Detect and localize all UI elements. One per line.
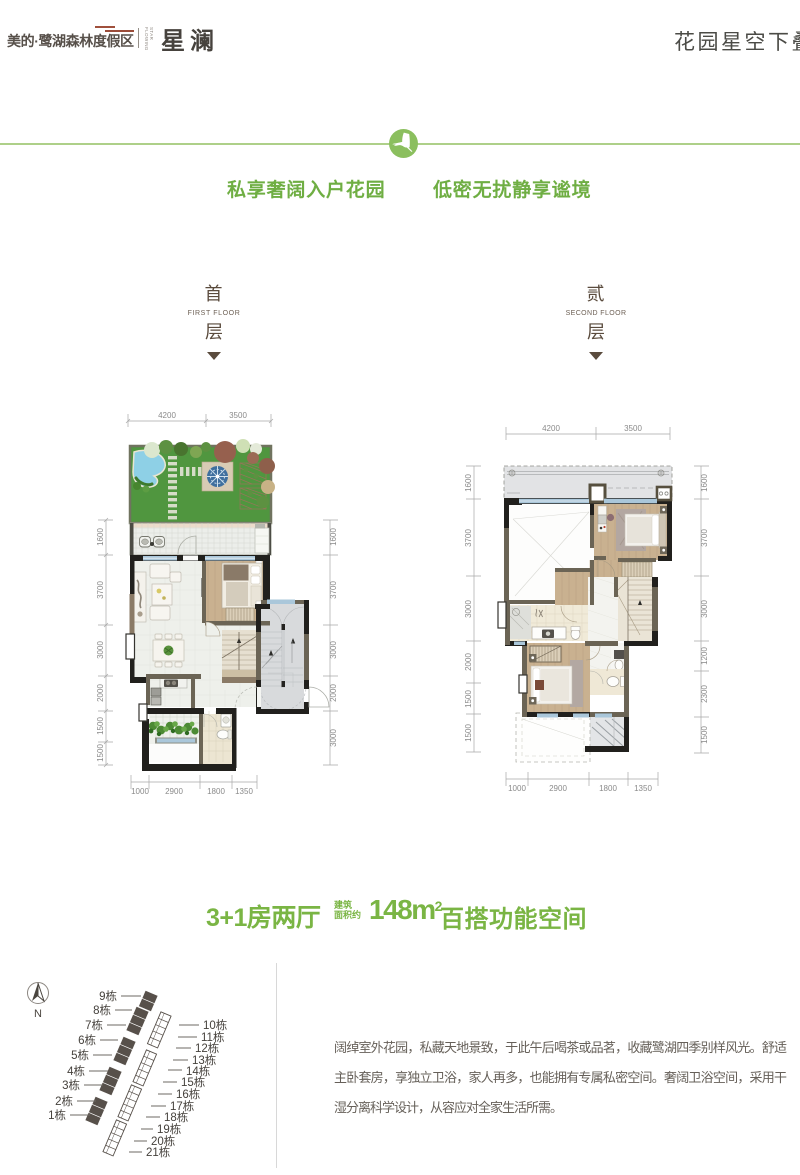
svg-text:4栋: 4栋: [67, 1064, 85, 1078]
svg-text:17栋: 17栋: [170, 1099, 195, 1113]
svg-text:1600: 1600: [96, 528, 105, 546]
svg-text:1500: 1500: [96, 744, 105, 762]
svg-text:1000: 1000: [508, 784, 526, 793]
svg-text:N: N: [34, 1008, 42, 1020]
svg-text:19栋: 19栋: [157, 1122, 182, 1136]
svg-text:4200: 4200: [158, 411, 176, 420]
svg-text:3000: 3000: [464, 600, 473, 618]
svg-text:18栋: 18栋: [164, 1110, 189, 1124]
svg-text:3500: 3500: [229, 411, 247, 420]
svg-text:10栋: 10栋: [203, 1018, 228, 1032]
svg-text:6栋: 6栋: [78, 1033, 96, 1047]
svg-text:13栋: 13栋: [192, 1053, 217, 1067]
svg-text:3000: 3000: [96, 641, 105, 659]
svg-text:1500: 1500: [96, 717, 105, 735]
svg-text:3700: 3700: [464, 529, 473, 547]
svg-text:1350: 1350: [235, 787, 253, 796]
svg-text:1栋: 1栋: [48, 1108, 66, 1122]
svg-text:9栋: 9栋: [99, 989, 117, 1003]
svg-text:3700: 3700: [329, 581, 338, 599]
svg-text:1500: 1500: [464, 724, 473, 742]
svg-text:1600: 1600: [700, 474, 709, 492]
svg-text:1500: 1500: [464, 690, 473, 708]
svg-text:1800: 1800: [207, 787, 225, 796]
svg-text:16栋: 16栋: [176, 1087, 201, 1101]
svg-text:7栋: 7栋: [85, 1018, 103, 1032]
svg-text:1600: 1600: [329, 528, 338, 546]
svg-text:11栋: 11栋: [201, 1030, 225, 1044]
svg-text:3栋: 3栋: [62, 1078, 80, 1092]
svg-text:3700: 3700: [700, 529, 709, 547]
svg-text:12栋: 12栋: [195, 1041, 220, 1055]
svg-text:3000: 3000: [329, 729, 338, 747]
svg-text:2000: 2000: [329, 684, 338, 702]
svg-text:1200: 1200: [700, 647, 709, 665]
svg-text:5栋: 5栋: [71, 1048, 89, 1062]
svg-text:2900: 2900: [165, 787, 183, 796]
svg-text:2栋: 2栋: [55, 1094, 73, 1108]
svg-text:15栋: 15栋: [181, 1075, 206, 1089]
svg-text:2000: 2000: [96, 684, 105, 702]
svg-text:3500: 3500: [624, 424, 642, 433]
svg-text:21栋: 21栋: [146, 1145, 171, 1159]
svg-text:2300: 2300: [700, 685, 709, 703]
svg-text:1600: 1600: [464, 474, 473, 492]
svg-text:1350: 1350: [634, 784, 652, 793]
svg-text:14栋: 14栋: [186, 1064, 211, 1078]
svg-text:1500: 1500: [700, 726, 709, 744]
svg-text:1000: 1000: [131, 787, 149, 796]
svg-text:3000: 3000: [700, 600, 709, 618]
svg-text:4200: 4200: [542, 424, 560, 433]
svg-text:3700: 3700: [96, 581, 105, 599]
svg-text:1800: 1800: [599, 784, 617, 793]
svg-text:2900: 2900: [549, 784, 567, 793]
svg-text:2000: 2000: [464, 653, 473, 671]
svg-text:20栋: 20栋: [151, 1134, 176, 1148]
svg-text:8栋: 8栋: [93, 1003, 111, 1017]
svg-text:3000: 3000: [329, 641, 338, 659]
